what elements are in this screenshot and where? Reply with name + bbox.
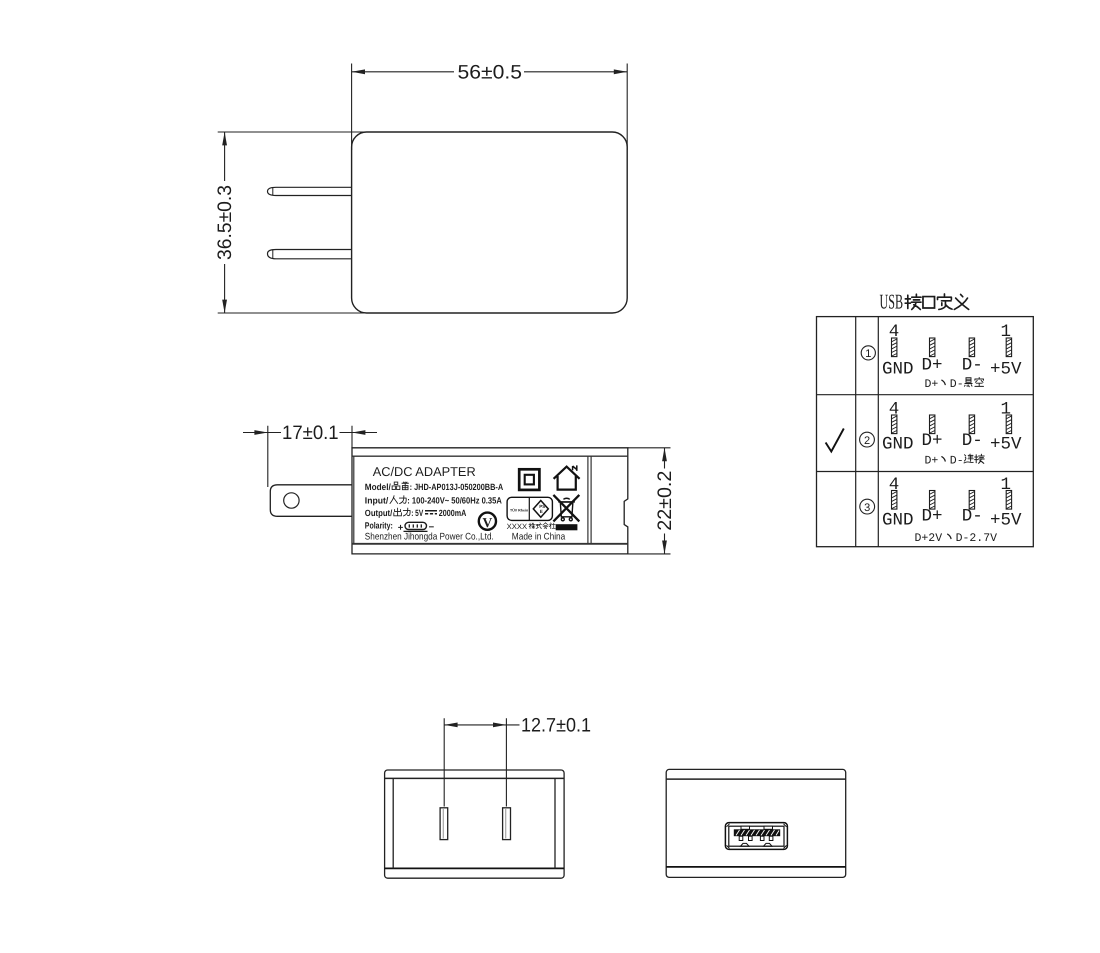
svg-text:4: 4 — [889, 475, 900, 495]
svg-text:22±0.2: 22±0.2 — [654, 471, 676, 531]
svg-text:4: 4 — [889, 400, 900, 420]
svg-text:D+: D+ — [922, 356, 943, 376]
svg-text:+5V: +5V — [990, 510, 1022, 530]
svg-text:2: 2 — [864, 435, 870, 447]
svg-text:: 100-240V~ 50/60Hz 0.35A: : 100-240V~ 50/60Hz 0.35A — [407, 496, 502, 506]
svg-text:D+: D+ — [925, 378, 939, 391]
svg-text:56±0.5: 56±0.5 — [458, 61, 523, 83]
svg-text:XXXX: XXXX — [507, 522, 528, 531]
svg-text:12.7±0.1: 12.7±0.1 — [521, 715, 591, 737]
svg-text:+5V: +5V — [990, 435, 1022, 455]
svg-text:USB: USB — [880, 290, 904, 314]
svg-text:GND: GND — [882, 510, 914, 530]
svg-text:Model/: Model/ — [365, 482, 391, 492]
svg-text:TÜV Rhein: TÜV Rhein — [510, 508, 528, 513]
svg-text:3: 3 — [864, 502, 870, 514]
svg-text:D-: D- — [950, 378, 964, 391]
svg-text:D+: D+ — [925, 455, 939, 468]
svg-text:Input/: Input/ — [365, 496, 389, 506]
svg-text:GND: GND — [882, 359, 914, 379]
svg-text:17±0.1: 17±0.1 — [282, 422, 339, 444]
svg-text:V: V — [483, 515, 493, 530]
svg-text:: 5V: : 5V — [411, 508, 423, 518]
svg-text:D+2V: D+2V — [915, 532, 943, 545]
svg-text:+5V: +5V — [990, 359, 1022, 379]
svg-text:1: 1 — [865, 348, 871, 360]
svg-text:D-: D- — [950, 455, 964, 468]
svg-text:Made in China: Made in China — [512, 532, 566, 543]
svg-text:36.5±0.3: 36.5±0.3 — [214, 185, 236, 260]
svg-text:AC/DC ADAPTER: AC/DC ADAPTER — [373, 464, 476, 479]
svg-text:Output/: Output/ — [365, 508, 393, 518]
svg-text:D-2.7V: D-2.7V — [956, 532, 998, 545]
svg-text:D-: D- — [962, 356, 983, 376]
svg-text:E: E — [540, 509, 543, 514]
svg-text:: JHD-AP013J-050200BB-A: : JHD-AP013J-050200BB-A — [410, 482, 504, 492]
svg-text:2000mA: 2000mA — [439, 508, 467, 518]
svg-text:Shenzhen Jihongda Power Co.,Lt: Shenzhen Jihongda Power Co.,Ltd. — [365, 531, 494, 542]
svg-text:Polarity:: Polarity: — [365, 520, 393, 530]
svg-text:4: 4 — [889, 322, 900, 342]
svg-text:GND: GND — [882, 435, 914, 455]
